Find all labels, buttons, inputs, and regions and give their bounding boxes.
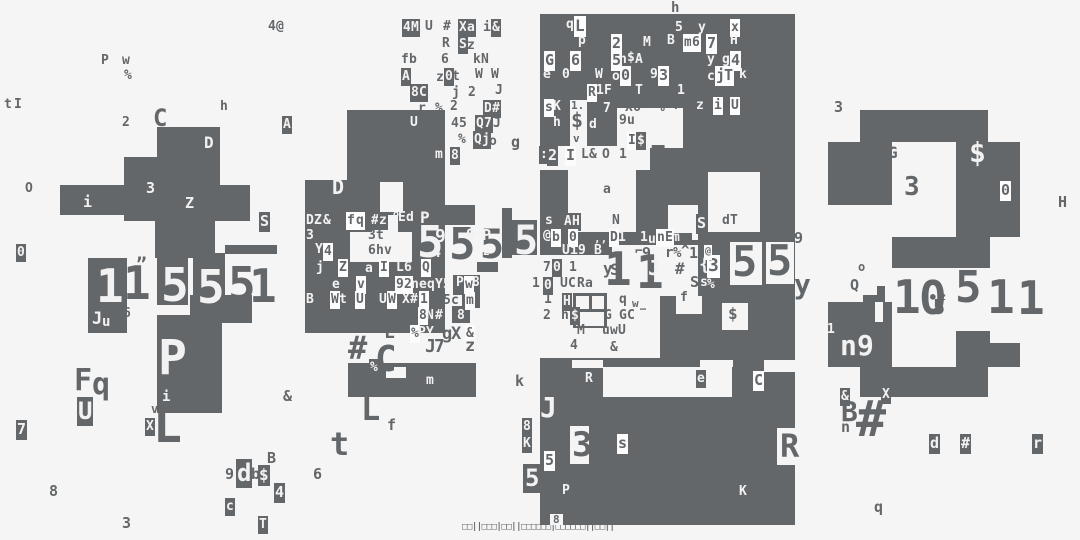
glyph-cell: M [410, 19, 420, 37]
glyph: 9 [619, 114, 627, 127]
glyph: k [739, 68, 747, 81]
glyph: 9 [225, 467, 234, 482]
glyph-cell: 0 [552, 259, 562, 277]
glyph: R [585, 372, 593, 385]
block-rect [225, 245, 277, 254]
glyph: W [595, 68, 603, 81]
glyph-cell: U [77, 397, 93, 426]
glyph: U [410, 116, 418, 129]
block-rect [828, 142, 892, 205]
glyph: h [671, 1, 679, 15]
glyph: 8 [553, 514, 560, 525]
glyph: i [83, 195, 92, 210]
glyph: 9 [857, 332, 874, 360]
glyph-cell: 4 [274, 483, 285, 503]
glyph: 5 [675, 21, 683, 34]
glyph: 9 [578, 244, 586, 257]
glyph: % [657, 101, 665, 114]
glyph: 8 [457, 309, 465, 322]
glyph: z [483, 246, 490, 257]
glyph: h [561, 309, 569, 322]
glyph: d [722, 214, 730, 227]
block-rect [124, 157, 220, 185]
glyph: Z [650, 143, 666, 169]
glyph: 5 [732, 241, 757, 283]
glyph: 1 [689, 246, 698, 261]
glyph: T [730, 214, 738, 227]
glyph: 3 [572, 428, 592, 462]
glyph: g [722, 53, 730, 66]
glyph: 8 [472, 276, 480, 289]
glyph: & [283, 389, 292, 404]
glyph: k [515, 374, 524, 389]
glyph: P [482, 228, 491, 243]
glyph: N [612, 214, 620, 227]
glyph: g [511, 135, 520, 150]
glyph: q [92, 370, 110, 400]
glyph: # [410, 293, 418, 306]
glyph: A [635, 53, 643, 66]
glyph: p [578, 34, 586, 47]
glyph: B [594, 244, 602, 257]
glyph: n [840, 332, 857, 360]
glyph: 5 [459, 117, 467, 130]
glyph: 3 [146, 181, 155, 196]
glyph: # [348, 332, 367, 364]
glyph: $ [627, 51, 635, 64]
glyph: t [339, 293, 347, 306]
glyph-cell: S [259, 212, 270, 232]
glyph: 1 [532, 277, 540, 290]
glyph-cell: @ [704, 245, 712, 260]
glyph: Y [315, 243, 323, 256]
glyph: L [581, 148, 589, 161]
glyph: y [707, 53, 715, 66]
glyph: 6 [368, 244, 376, 257]
glyph-cell: 8 [450, 147, 460, 165]
glyph-cell: b [551, 229, 561, 247]
glyph: 3 [834, 100, 843, 115]
glyph: d [589, 118, 597, 131]
glyph: q [566, 18, 574, 31]
glyph-cell: # [960, 434, 971, 454]
glyph-cell: % [369, 359, 379, 377]
glyph: Q [850, 278, 859, 293]
glyph: % [435, 102, 443, 115]
glyph: Z [314, 214, 322, 227]
glyph: u [602, 324, 610, 337]
glyph-cell: m [465, 292, 475, 310]
glyph: a [603, 183, 611, 196]
glyph: R [577, 277, 585, 290]
glyph: D [204, 135, 214, 151]
glyph: h [553, 116, 561, 129]
glyph: U [562, 244, 570, 257]
glyph: w [122, 54, 130, 67]
glyph: s [545, 214, 553, 227]
glyph: t [452, 70, 460, 83]
glyph: u [102, 315, 110, 329]
glyph: 1 [596, 84, 604, 97]
glyph-cell: i [713, 97, 723, 115]
glyph: P [456, 276, 464, 289]
glyph: 2 [543, 309, 551, 322]
glyph: 7 [673, 99, 681, 112]
glyph: 9 [650, 68, 658, 81]
glyph: f [401, 53, 409, 66]
glyph: P [562, 484, 570, 497]
glyph: L [153, 402, 182, 450]
glyph: 5 [443, 294, 451, 307]
glyph-cell: 4 [323, 243, 333, 261]
glyph-cell: 5 [544, 451, 555, 471]
glyph: & [323, 214, 331, 227]
ascii-art-canvas: □□||□□□|□□||□□□□□□|□□□□□□||□□|| 4@Pw%tIh… [0, 0, 1080, 540]
glyph: U [560, 277, 568, 290]
glyph-cell: S [696, 214, 707, 234]
glyph: z [436, 71, 444, 84]
hole-rect [380, 182, 403, 212]
glyph: R [442, 37, 450, 50]
glyph: n [411, 278, 419, 291]
glyph: B [267, 451, 276, 466]
hole-rect [875, 302, 883, 322]
glyph: t [4, 98, 12, 111]
glyph-cell: Z [338, 259, 348, 277]
glyph: W [475, 68, 483, 81]
glyph: z [467, 39, 475, 52]
glyph: i [570, 244, 578, 257]
glyph: z [465, 338, 475, 355]
glyph: 1 [640, 231, 648, 244]
glyph: U [425, 20, 433, 33]
glyph: d [406, 211, 414, 224]
glyph: 3 [368, 229, 376, 242]
glyph: y [794, 271, 811, 299]
glyph: W [491, 68, 499, 81]
glyph: a [585, 277, 593, 290]
glyph: m [435, 148, 443, 161]
glyph: # [443, 20, 451, 33]
glyph-cell: q [355, 212, 365, 230]
glyph: 1 [249, 263, 277, 309]
glyph: e [419, 278, 427, 291]
glyph: G [888, 145, 898, 161]
glyph: R [780, 430, 799, 462]
glyph: J [495, 84, 503, 97]
glyph: f [680, 291, 688, 304]
glyph: k [473, 53, 481, 66]
glyph: G [619, 309, 627, 322]
glyph: 5 [197, 264, 225, 310]
glyph: U [618, 324, 626, 337]
glyph: X [402, 293, 410, 306]
glyph: a [365, 262, 373, 275]
glyph: O [25, 182, 33, 195]
glyph-cell: A [282, 116, 292, 134]
glyph: e [602, 132, 610, 145]
glyph: 2 [468, 86, 476, 99]
glyph-cell: 0 [16, 244, 26, 262]
glyph-cell: K [522, 435, 532, 453]
glyph: B [667, 34, 675, 47]
glyph: # [675, 261, 685, 277]
glyph: 4 [268, 20, 276, 33]
glyph-cell: e [696, 370, 706, 388]
glyph: 1 [569, 261, 577, 274]
glyph: c [707, 70, 715, 83]
glyph: 1 [1017, 275, 1045, 321]
glyph: C [568, 277, 576, 290]
glyph: U [379, 293, 387, 306]
glyph-cell: c [225, 498, 235, 516]
glyph: o [612, 70, 620, 83]
glyph: r [418, 102, 426, 115]
glyph: v [384, 244, 392, 257]
hole-rect [764, 360, 797, 372]
glyph: $ [571, 110, 583, 130]
glyph: L [396, 261, 404, 274]
glyph: n [619, 53, 627, 66]
glyph: @ [276, 20, 284, 33]
block-rect [956, 331, 990, 367]
glyph: H [1058, 195, 1067, 210]
glyph: % [124, 69, 132, 82]
glyph: D [332, 177, 344, 197]
glyph: & [610, 341, 618, 354]
glyph: H [730, 34, 738, 47]
glyph: G [604, 309, 612, 322]
glyph: N [426, 309, 434, 322]
glyph: u [627, 114, 635, 127]
glyph: C [627, 309, 635, 322]
glyph: S [690, 275, 699, 290]
glyph: h [220, 100, 228, 113]
glyph: 1 [987, 274, 1015, 320]
glyph: z [940, 293, 946, 303]
glyph: m [672, 231, 680, 244]
glyph-cell: T [723, 66, 734, 86]
glyph: n [841, 420, 850, 435]
glyph-cell: s [617, 434, 628, 454]
glyph: 9 [794, 231, 803, 246]
glyph: 7 [434, 338, 445, 356]
glyph-cell: 3 [658, 66, 669, 86]
glyph-cell: C [753, 371, 764, 391]
glyph-cell: d [236, 459, 252, 488]
glyph: & [589, 148, 597, 161]
block-rect [347, 110, 445, 180]
glyph: 4 [451, 117, 459, 130]
glyph: 0 [562, 68, 570, 81]
glyph: $ [969, 139, 986, 167]
glyph-cell: d [929, 434, 940, 454]
glyph: v [573, 133, 580, 144]
glyph-cell: T [258, 516, 268, 534]
glyph: 9 [642, 246, 651, 261]
glyph: 1 [893, 274, 921, 320]
glyph: ” [136, 256, 147, 274]
glyph: 1 [677, 84, 685, 97]
glyph-cell: 7 [706, 34, 717, 54]
glyph-cell: z [695, 97, 705, 115]
glyph-cell: & [491, 19, 501, 37]
glyph: b [409, 53, 417, 66]
glyph: % [458, 133, 466, 146]
glyph: 5 [161, 262, 189, 308]
glyph-cell: 0 [620, 66, 631, 86]
glyph: 6 [123, 307, 131, 320]
glyph-cell: 2 [547, 146, 558, 166]
glyph-cell: 6 [691, 34, 701, 52]
hole-rect [592, 296, 604, 309]
glyph: Y [435, 278, 443, 291]
glyph: J [540, 394, 557, 422]
glyph: M [643, 36, 651, 49]
glyph: 1 [827, 323, 835, 336]
hole-rect [603, 367, 732, 397]
glyph: Z [185, 196, 194, 211]
glyph: $ [728, 306, 738, 322]
glyph: 5 [767, 240, 792, 282]
glyph: J [92, 311, 102, 328]
glyph: E [398, 211, 406, 224]
glyph: u [610, 132, 618, 145]
glyph: 3 [904, 174, 920, 200]
glyph-cell: I [565, 146, 576, 166]
glyph: e [543, 68, 551, 81]
glyph: 4 [432, 245, 441, 260]
glyph: 2 [450, 100, 458, 113]
glyph: m [426, 374, 434, 387]
glyph: 5 [955, 266, 982, 310]
glyph: j [316, 261, 324, 274]
glyph: % [707, 278, 715, 291]
glyph-cell: 8 [522, 418, 532, 436]
glyph: B [306, 293, 314, 306]
hole-rect [572, 360, 603, 368]
glyph-cell: C [418, 84, 428, 102]
glyph: 6 [313, 467, 322, 482]
glyph-cell: 6 [570, 51, 581, 71]
glyph: 4 [570, 339, 578, 352]
glyph: … [640, 303, 646, 313]
glyph: 1 [96, 263, 124, 309]
glyph: w [610, 324, 618, 337]
glyph: K [553, 100, 561, 113]
glyph: F [74, 366, 92, 396]
glyph-cell: $ [636, 132, 646, 150]
glyph: F [604, 84, 612, 97]
glyph: 7 [543, 261, 551, 274]
glyph-cell: U [730, 97, 740, 115]
glyph: S [610, 262, 620, 278]
glyph-cell: a [466, 19, 476, 37]
glyph: 7 [603, 102, 611, 115]
glyph: L [361, 393, 380, 425]
glyph: 1 [619, 148, 627, 161]
glyph: i [483, 21, 491, 34]
glyph: @ [543, 229, 551, 242]
glyph: y [698, 21, 706, 34]
glyph: o [858, 261, 865, 273]
glyph: O [602, 148, 610, 161]
glyph: 2 [122, 116, 130, 129]
glyph: o [489, 135, 497, 148]
glyph-cell: 0 [1000, 181, 1011, 201]
block-rect [877, 286, 885, 295]
glyph: h [376, 244, 384, 257]
glyph: K [739, 485, 747, 498]
glyph: q [874, 500, 883, 515]
glyph: 1 [544, 293, 552, 306]
glyph: J [493, 117, 501, 130]
glyph: P [101, 54, 109, 67]
glyph: 5 [514, 221, 538, 261]
glyph: I [14, 98, 22, 111]
glyph: 6 [441, 53, 449, 66]
glyph: C [153, 106, 167, 130]
glyph: 3 [306, 229, 314, 242]
glyph-cell: r [1032, 434, 1043, 454]
glyph-cell: U [355, 291, 365, 309]
glyph: q [427, 278, 435, 291]
glyph-cell: I [379, 259, 389, 277]
glyph: D [306, 214, 314, 227]
glyph: j [452, 86, 460, 99]
glyph: t [704, 297, 711, 308]
block-rect [990, 343, 1020, 367]
glyph: T [635, 84, 643, 97]
glyph-cell: $ [258, 465, 270, 486]
glyph: M [577, 324, 585, 337]
glyph: 6 [404, 261, 412, 274]
glyph: P [158, 334, 187, 382]
glyph: 5 [525, 466, 539, 490]
glyph: c [451, 294, 459, 307]
glyph: 5 [443, 278, 451, 291]
glyph: 8 [49, 484, 58, 499]
glyph: t [330, 428, 349, 460]
glyph: f [387, 418, 396, 433]
glyph: X [451, 326, 461, 343]
glyph: 3 [122, 516, 131, 531]
glyph: t [376, 229, 384, 242]
glyph-cell: 7 [16, 420, 27, 440]
glyph: # [435, 309, 443, 322]
glyph: N [481, 53, 489, 66]
hole-rect [700, 360, 733, 367]
glyph: # [856, 394, 886, 444]
glyph: e [332, 278, 340, 291]
glyph-cell: W [387, 291, 397, 309]
